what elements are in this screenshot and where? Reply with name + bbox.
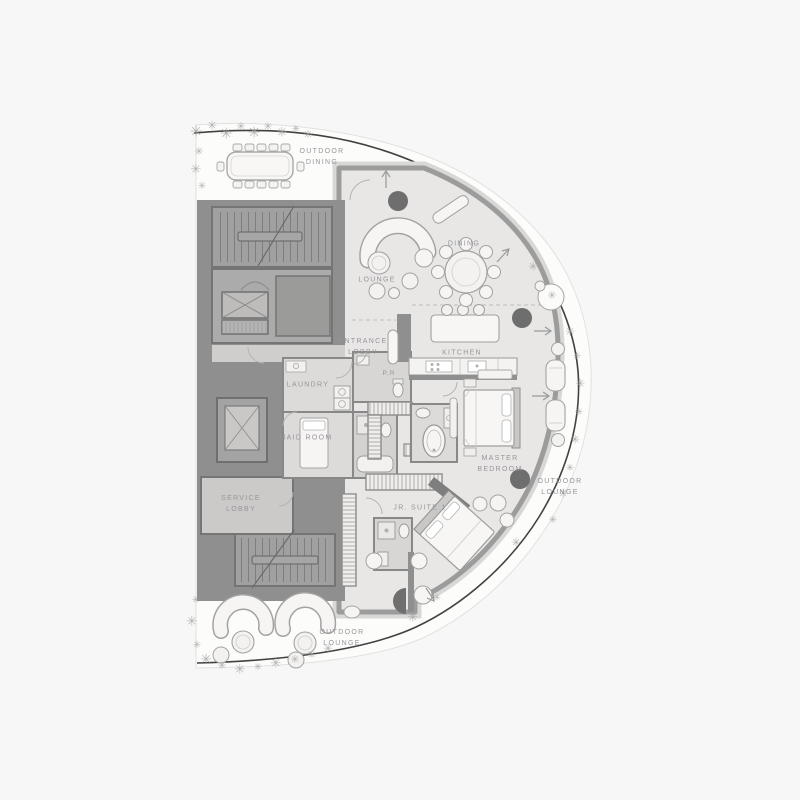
tree-icon: ✳ (566, 463, 574, 474)
tree-icon: ✳ (570, 433, 580, 447)
dining-chair (432, 266, 445, 279)
tree-icon: ✳ (433, 594, 441, 604)
dining-chair (460, 294, 473, 307)
dining-chair (460, 238, 473, 251)
tree-icon: ✳ (573, 351, 581, 362)
dining-chair (488, 266, 501, 279)
stairs-top (212, 206, 332, 267)
dining-chair (440, 246, 453, 259)
kitchen-island (431, 315, 499, 342)
service-elevator (217, 398, 267, 462)
kitchen-tall-cabinet (397, 314, 411, 362)
column (510, 469, 530, 489)
tree-icon: ✳ (271, 657, 282, 672)
dining-furniture (432, 238, 501, 307)
tree-icon: ✳ (248, 124, 261, 142)
tree-icon: ✳ (292, 124, 300, 135)
tree-icon: ✳ (236, 120, 245, 133)
tree-icon: ✳ (200, 652, 212, 668)
elevator-bank (212, 269, 332, 343)
dining-chair (480, 286, 493, 299)
tree-icon: ✳ (192, 595, 200, 606)
tree-icon: ✳ (220, 125, 233, 143)
tree-icon: ✳ (575, 407, 583, 418)
tree-icon: ✳ (235, 663, 246, 678)
tree-icon: ✳ (254, 662, 262, 673)
tree-icon: ✳ (217, 659, 226, 672)
entrance-lobby-console (388, 330, 398, 364)
dining-chair (480, 246, 493, 259)
tree-icon: ✳ (528, 260, 538, 274)
column (388, 191, 408, 211)
tree-icon: ✳ (191, 163, 202, 178)
tree-icon: ✳ (263, 120, 272, 133)
tree-icon: ✳ (408, 611, 419, 626)
tree-icon: ✳ (549, 515, 557, 526)
coffee-table (368, 252, 390, 274)
tree-icon: ✳ (547, 289, 556, 302)
tree-icon: ✳ (190, 123, 203, 141)
laundry-room (283, 358, 353, 412)
tree-icon: ✳ (193, 640, 201, 651)
tree-icon: ✳ (290, 653, 299, 666)
floor-plan-canvas: ✳✳✳✳✳✳✳✳✳✳✳✳✳✳✳✳✳✳✳✳✳✳✳✳✳✳✳✳✳✳✳✳✳✳✳✳ OUT… (0, 0, 800, 800)
tree-icon: ✳ (308, 650, 316, 661)
tree-icon: ✳ (277, 126, 288, 141)
bar-stool (474, 305, 485, 316)
sun-lounger (546, 400, 565, 431)
tree-icon: ✳ (575, 377, 585, 391)
tree-icon: ✳ (558, 487, 568, 501)
tree-icon: ✳ (187, 615, 198, 630)
sun-lounger (546, 360, 565, 391)
tree-icon: ✳ (303, 128, 312, 141)
tree-icon: ✳ (511, 536, 521, 550)
bar-stool (442, 305, 453, 316)
tree-icon: ✳ (565, 325, 575, 339)
floor-plan-drawing: ✳✳✳✳✳✳✳✳✳✳✳✳✳✳✳✳✳✳✳✳✳✳✳✳✳✳✳✳✳✳✳✳✳✳✳✳ (0, 0, 800, 800)
tree-icon: ✳ (194, 145, 203, 158)
dining-table (445, 251, 487, 293)
maid-room (283, 412, 353, 478)
column (512, 308, 532, 328)
stairs-bottom (235, 530, 335, 588)
tree-icon: ✳ (207, 119, 217, 133)
tree-icon: ✳ (323, 642, 333, 656)
dining-chair (440, 286, 453, 299)
tree-icon: ✳ (198, 181, 206, 192)
